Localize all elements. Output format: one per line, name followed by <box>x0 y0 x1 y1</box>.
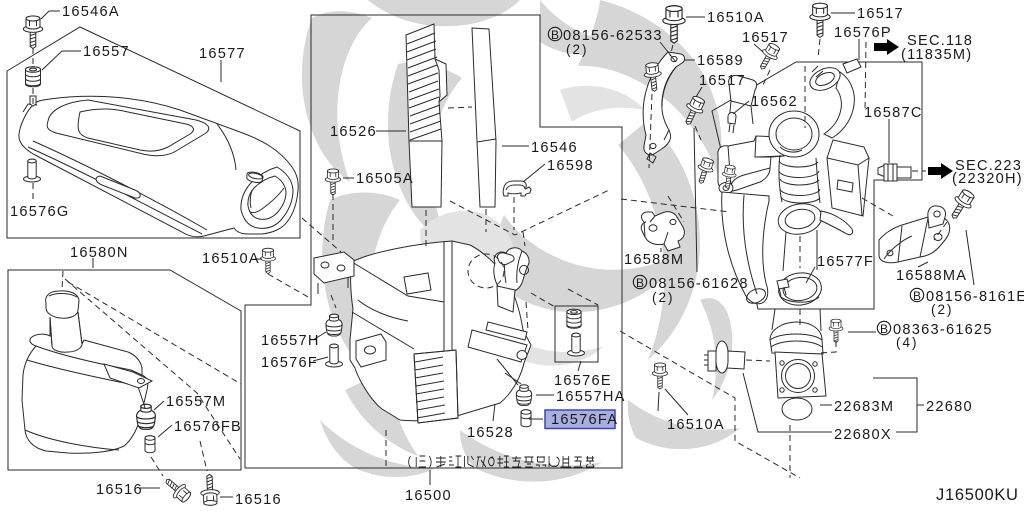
svg-text:B: B <box>880 322 889 336</box>
svg-text:16587C: 16587C <box>864 105 923 121</box>
svg-text:(2): (2) <box>652 290 675 305</box>
svg-text:16517: 16517 <box>742 30 789 46</box>
svg-text:16546A: 16546A <box>62 4 120 20</box>
svg-text:16528: 16528 <box>467 425 514 441</box>
svg-text:16580N: 16580N <box>70 245 129 261</box>
svg-text:16576E: 16576E <box>554 373 612 389</box>
svg-text:16546: 16546 <box>531 140 578 156</box>
svg-text:B: B <box>636 276 645 290</box>
svg-text:22680: 22680 <box>926 399 973 415</box>
svg-text:(22320H): (22320H) <box>952 171 1023 187</box>
svg-text:16557M: 16557M <box>166 394 226 410</box>
svg-text:16576FB: 16576FB <box>174 419 242 435</box>
svg-text:16598: 16598 <box>547 158 594 174</box>
svg-text:16577F: 16577F <box>817 254 874 270</box>
svg-text:16577: 16577 <box>199 46 246 62</box>
svg-text:16576FA: 16576FA <box>551 412 618 428</box>
svg-text:16510A: 16510A <box>202 251 260 267</box>
svg-text:22680X: 22680X <box>834 427 892 443</box>
svg-text:16589: 16589 <box>697 53 744 69</box>
svg-text:16557H: 16557H <box>261 333 320 349</box>
svg-text:16510A: 16510A <box>667 417 725 433</box>
svg-text:16588M: 16588M <box>624 252 684 268</box>
svg-text:16516: 16516 <box>96 482 143 498</box>
svg-text:16510A: 16510A <box>707 10 765 26</box>
svg-text:(11835M): (11835M) <box>901 47 972 63</box>
svg-text:B: B <box>551 28 560 42</box>
svg-text:16576F: 16576F <box>261 355 318 371</box>
svg-text:16526: 16526 <box>330 124 377 140</box>
svg-text:16517: 16517 <box>699 73 746 89</box>
svg-text:16517: 16517 <box>857 6 904 22</box>
svg-text:16562: 16562 <box>751 94 798 110</box>
svg-text:(2): (2) <box>931 302 954 317</box>
svg-text:16576P: 16576P <box>834 25 892 41</box>
svg-text:16588MA: 16588MA <box>896 268 967 284</box>
svg-text:16500: 16500 <box>405 488 452 504</box>
svg-text:16576G: 16576G <box>10 204 69 220</box>
svg-text:16557: 16557 <box>83 44 130 60</box>
svg-text:16516: 16516 <box>235 492 282 508</box>
svg-text:22683M: 22683M <box>834 399 894 415</box>
svg-text:B: B <box>913 289 922 303</box>
svg-text:16505A: 16505A <box>356 171 414 187</box>
svg-text:(4): (4) <box>896 335 919 350</box>
svg-text:(2): (2) <box>566 42 589 57</box>
svg-text:J16500KU: J16500KU <box>936 486 1019 504</box>
svg-text:16557HA: 16557HA <box>556 389 626 405</box>
